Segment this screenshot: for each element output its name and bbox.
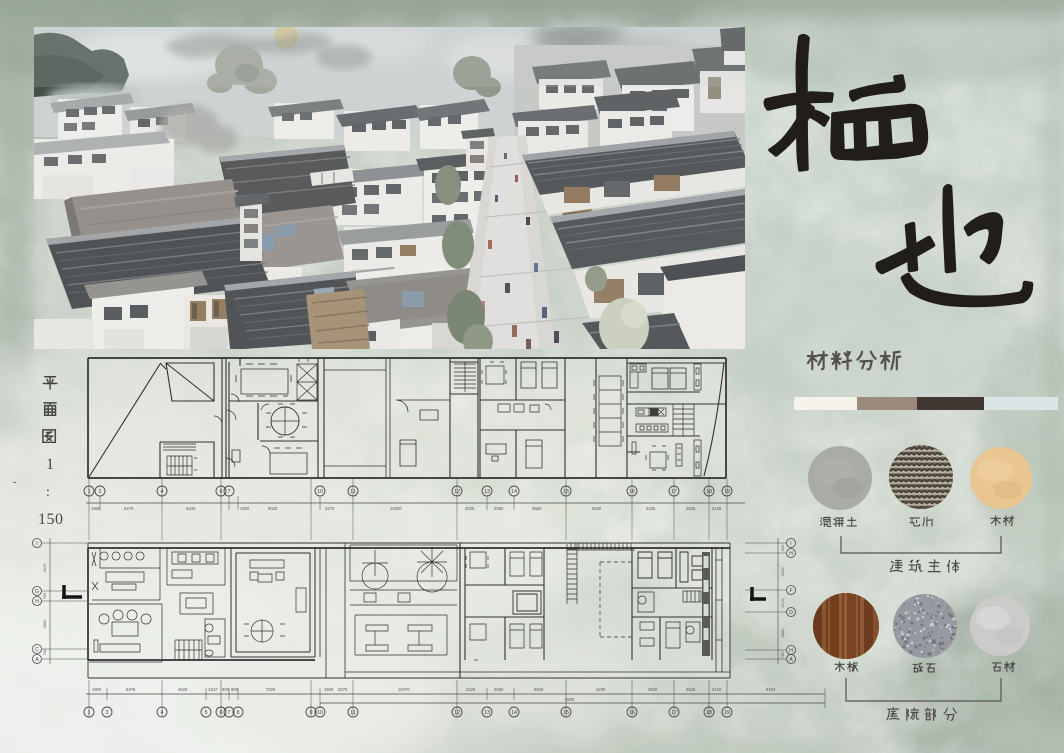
svg-text:17: 17 (671, 489, 677, 495)
svg-text:4230: 4230 (646, 506, 656, 511)
svg-text:10530: 10530 (390, 506, 402, 511)
svg-text:5: 5 (204, 710, 207, 716)
svg-text:750: 750 (780, 651, 785, 658)
svg-text:3800: 3800 (780, 628, 785, 638)
svg-text:3225: 3225 (466, 687, 476, 692)
svg-text:3525: 3525 (686, 506, 696, 511)
svg-text:13: 13 (484, 489, 490, 495)
svg-text:14: 14 (511, 710, 517, 716)
svg-text:3270: 3270 (325, 506, 335, 511)
svg-text:G: G (35, 589, 39, 595)
svg-text:3225: 3225 (465, 506, 475, 511)
svg-text:4: 4 (160, 489, 163, 495)
svg-text:4620: 4620 (178, 687, 188, 692)
svg-text:5940: 5940 (592, 506, 602, 511)
svg-text:18: 18 (706, 489, 712, 495)
svg-text:5475: 5475 (126, 687, 136, 692)
svg-text:2550: 2550 (494, 506, 504, 511)
svg-text:14: 14 (511, 489, 517, 495)
svg-text:5940: 5940 (534, 687, 544, 692)
svg-text:5150: 5150 (766, 687, 776, 692)
svg-text:5475: 5475 (124, 506, 134, 511)
svg-text:6: 6 (219, 489, 222, 495)
svg-text:785: 785 (42, 592, 47, 599)
svg-text:H: H (789, 551, 793, 557)
svg-text:4: 4 (160, 710, 163, 716)
svg-text:3275: 3275 (338, 687, 348, 692)
svg-text:17: 17 (671, 710, 677, 716)
svg-text:3525: 3525 (686, 687, 696, 692)
svg-text:4000: 4000 (42, 619, 47, 629)
svg-text:18: 18 (706, 710, 712, 716)
svg-text:11: 11 (350, 489, 356, 495)
svg-text:10: 10 (317, 489, 323, 495)
svg-text:3010: 3010 (780, 567, 785, 577)
svg-text:13: 13 (484, 710, 490, 716)
svg-text:9: 9 (309, 710, 312, 716)
svg-text:7225: 7225 (266, 687, 276, 692)
svg-text:4230: 4230 (596, 687, 606, 692)
svg-text:D: D (789, 610, 793, 616)
svg-text:12: 12 (454, 710, 460, 716)
svg-text:12: 12 (454, 489, 460, 495)
svg-text:-: - (13, 476, 17, 488)
svg-text:900: 900 (231, 687, 239, 692)
svg-text:1500: 1500 (324, 687, 334, 692)
svg-text:1: 1 (87, 710, 90, 716)
svg-text::: : (46, 485, 50, 500)
svg-text:C: C (35, 647, 39, 653)
svg-text:19: 19 (724, 489, 730, 495)
svg-text:1447: 1447 (208, 687, 218, 692)
svg-text:150: 150 (38, 511, 64, 528)
svg-text:4530: 4530 (648, 687, 658, 692)
svg-text:2145: 2145 (712, 506, 722, 511)
svg-text:5550: 5550 (532, 506, 542, 511)
svg-text:500: 500 (780, 544, 785, 551)
svg-text:8025: 8025 (268, 506, 278, 511)
svg-text:8: 8 (236, 710, 239, 716)
svg-text:16: 16 (629, 489, 635, 495)
svg-text:I: I (36, 541, 37, 547)
svg-text:F: F (789, 588, 792, 594)
svg-text:2170: 2170 (780, 598, 785, 608)
svg-text:2: 2 (98, 489, 101, 495)
svg-text:7: 7 (227, 710, 230, 716)
svg-text:10470: 10470 (398, 687, 410, 692)
svg-text:1800: 1800 (92, 687, 102, 692)
svg-text:H: H (789, 648, 793, 654)
svg-text:2550: 2550 (494, 687, 504, 692)
svg-text:7: 7 (227, 489, 230, 495)
svg-text:15: 15 (563, 489, 569, 495)
svg-text:16: 16 (629, 710, 635, 716)
svg-text:I: I (790, 541, 791, 547)
svg-text:6340: 6340 (186, 506, 196, 511)
svg-text:1800: 1800 (91, 506, 101, 511)
svg-text:790: 790 (42, 648, 47, 655)
svg-text:1: 1 (46, 456, 54, 473)
svg-text:3: 3 (105, 710, 108, 716)
svg-text:2140: 2140 (712, 687, 722, 692)
svg-text:H: H (35, 599, 39, 605)
svg-text:15: 15 (563, 710, 569, 716)
svg-text:1: 1 (87, 489, 90, 495)
svg-text:8500: 8500 (565, 697, 575, 702)
svg-text:1500: 1500 (240, 506, 250, 511)
svg-text:19: 19 (724, 710, 730, 716)
svg-text:900: 900 (222, 687, 230, 692)
svg-text:10: 10 (317, 710, 323, 716)
svg-text:6: 6 (219, 710, 222, 716)
svg-text:4175: 4175 (42, 563, 47, 573)
svg-text:11: 11 (350, 710, 356, 716)
